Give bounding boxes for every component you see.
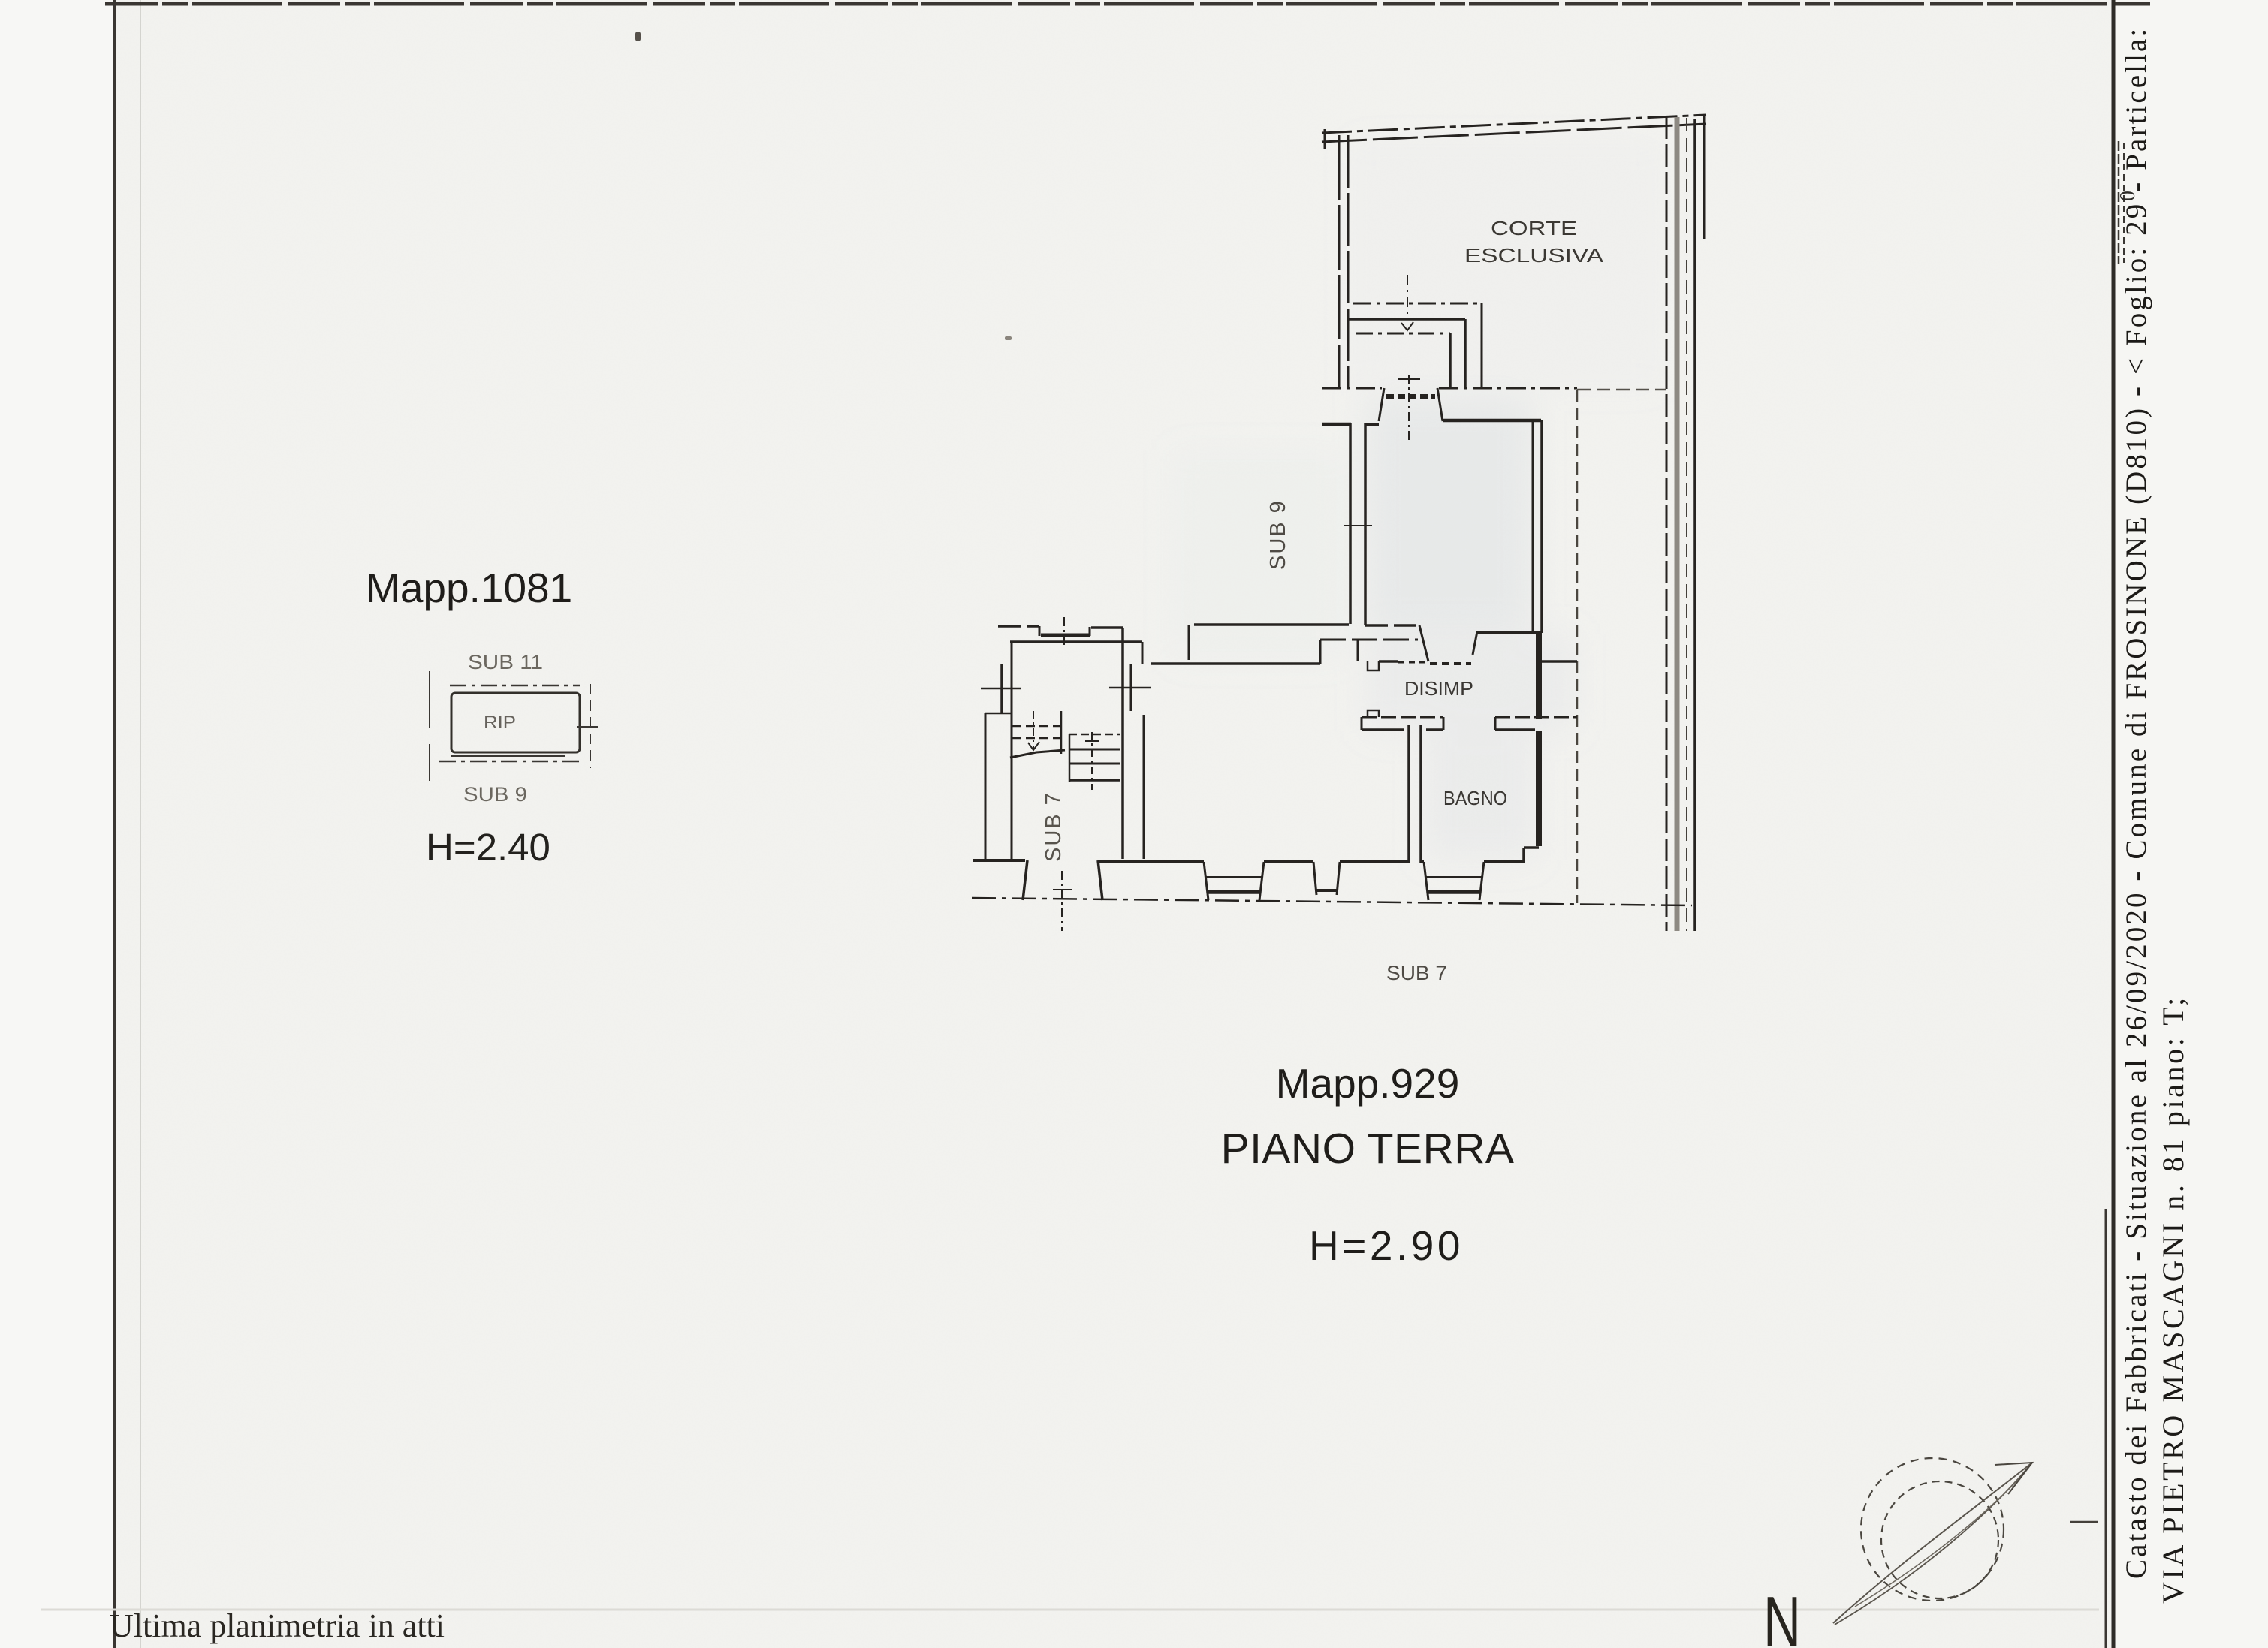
svg-text:CORTE: CORTE: [1491, 217, 1577, 240]
svg-text:Mapp.1081: Mapp.1081: [366, 565, 572, 611]
svg-text:SUB 9: SUB 9: [1266, 499, 1290, 570]
svg-text:SUB 11: SUB 11: [468, 651, 543, 673]
svg-text:Mapp.929: Mapp.929: [1276, 1060, 1460, 1107]
svg-text:VIA PIETRO MASCAGNI n. 81 pian: VIA PIETRO MASCAGNI n. 81 piano: T;: [2156, 995, 2190, 1604]
svg-text:Ultima planimetria in atti: Ultima planimetria in atti: [110, 1607, 445, 1644]
svg-text:SUB 9: SUB 9: [463, 783, 527, 806]
svg-text:N: N: [1763, 1582, 1801, 1648]
svg-text:Catasto dei Fabbricati - Situa: Catasto dei Fabbricati - Situazione al 2…: [2120, 26, 2152, 1579]
svg-text:SUB 7: SUB 7: [1042, 791, 1066, 862]
svg-text:0: 0: [2116, 191, 2140, 201]
svg-text:SUB 7: SUB 7: [1386, 962, 1447, 984]
svg-text:RIP: RIP: [484, 713, 516, 733]
svg-text:DISIMP: DISIMP: [1404, 677, 1473, 700]
svg-text:H=2.90: H=2.90: [1309, 1222, 1464, 1269]
svg-text:ESCLUSIVA: ESCLUSIVA: [1464, 244, 1604, 267]
svg-text:H=2.40: H=2.40: [426, 826, 550, 869]
svg-text:PIANO TERRA: PIANO TERRA: [1221, 1125, 1515, 1173]
svg-text:BAGNO: BAGNO: [1443, 787, 1507, 809]
